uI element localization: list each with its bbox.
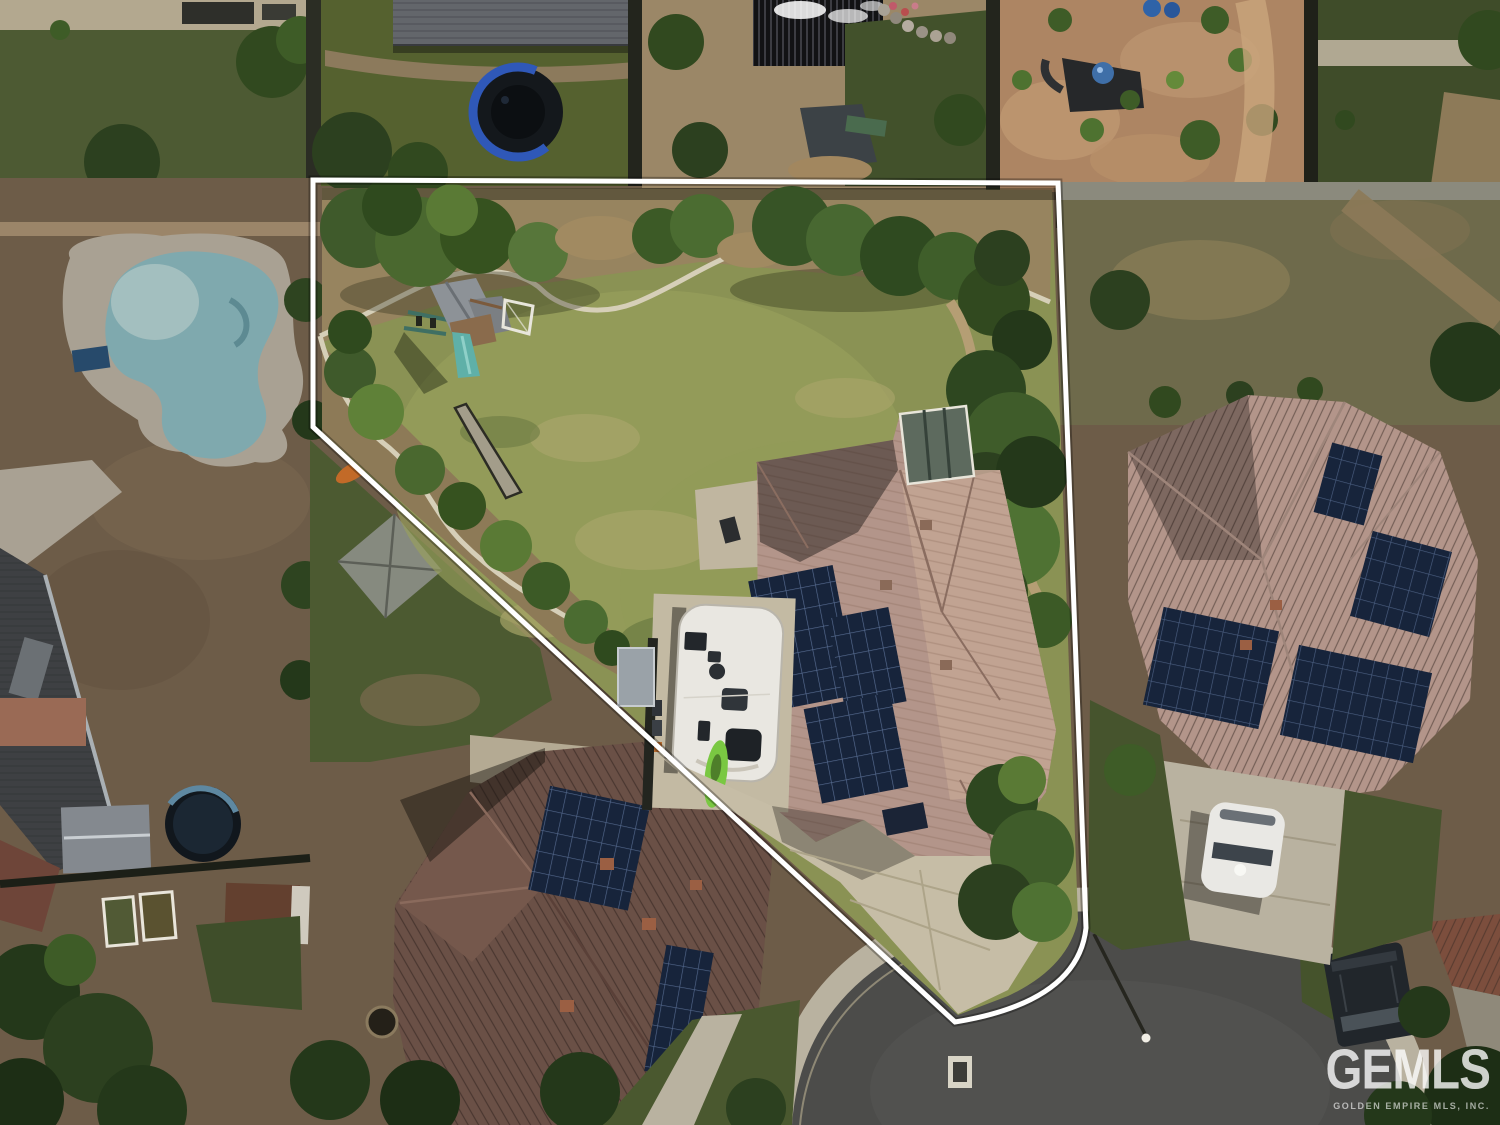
shed — [61, 804, 151, 873]
fence — [628, 0, 642, 186]
fence — [986, 0, 1000, 190]
trampoline — [473, 67, 563, 157]
above-ground-pool — [165, 786, 241, 862]
neighbor-pool-yard — [0, 178, 332, 1125]
fence — [1304, 0, 1318, 192]
neighbor-yards-top — [0, 0, 1500, 202]
fire-pit — [367, 1007, 397, 1037]
aerial-photo: GEMLS GOLDEN EMPIRE MLS, INC. — [0, 0, 1500, 1125]
shed-small — [618, 648, 654, 706]
patio-furniture — [182, 2, 254, 24]
solar-panel-array — [528, 786, 650, 911]
solar-panel-array — [804, 692, 909, 803]
street-lamp — [1142, 1034, 1151, 1043]
patio-cover — [900, 406, 974, 484]
